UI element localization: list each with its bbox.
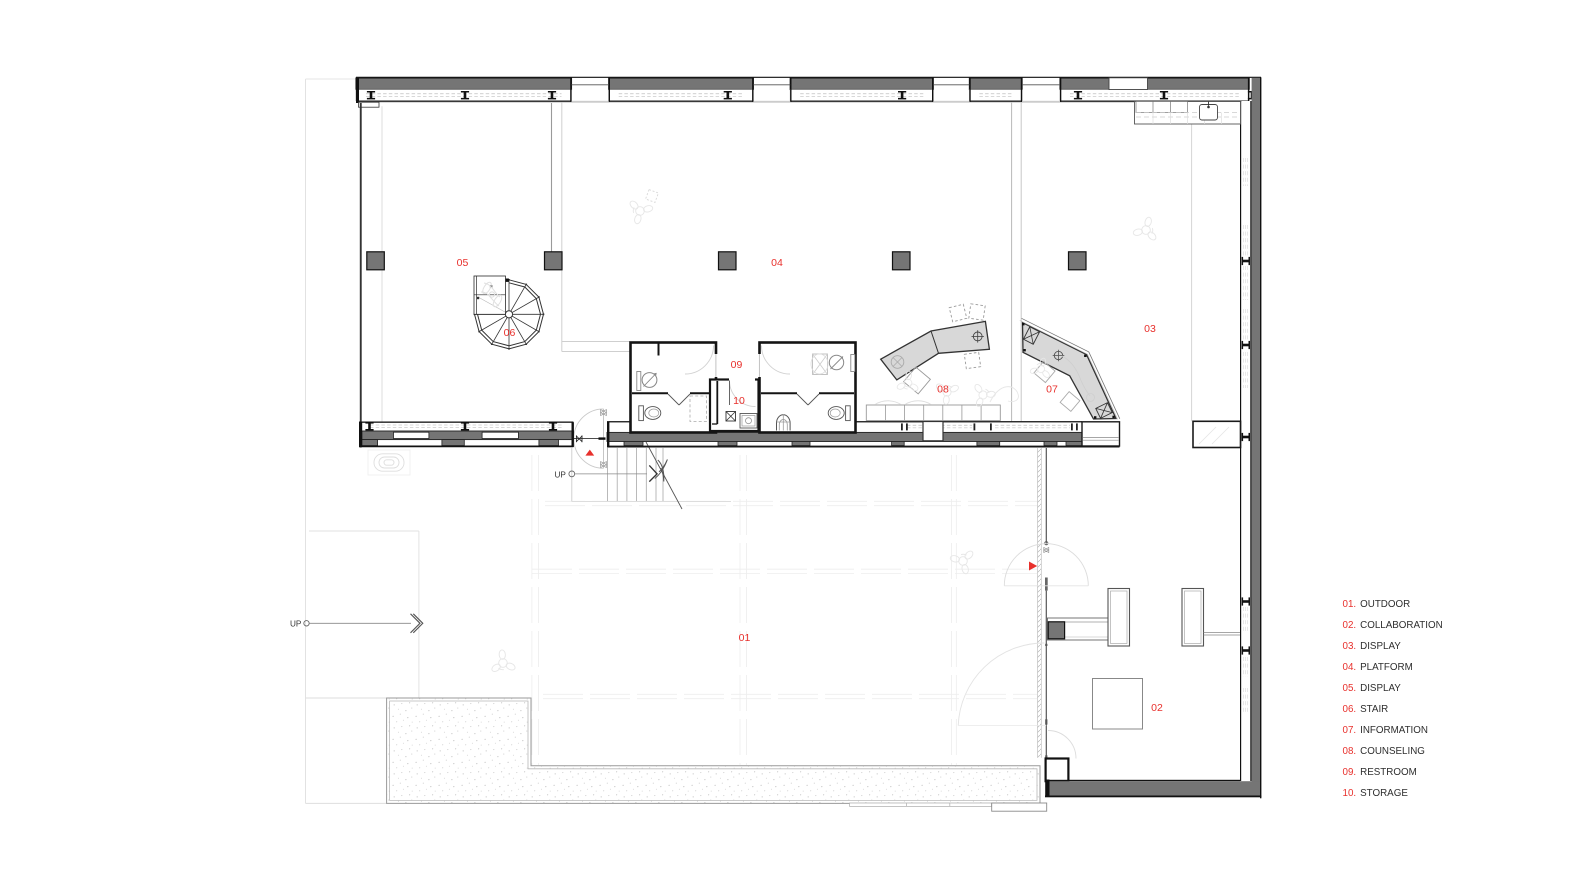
svg-text:01: 01 bbox=[739, 632, 751, 644]
svg-text:02: 02 bbox=[1151, 702, 1163, 714]
svg-text:08: 08 bbox=[937, 384, 949, 396]
svg-text:08.COUNSELING: 08.COUNSELING bbox=[1343, 746, 1425, 757]
svg-text:04.PLATFORM: 04.PLATFORM bbox=[1343, 662, 1413, 673]
svg-text:05: 05 bbox=[457, 257, 469, 269]
svg-text:06: 06 bbox=[504, 327, 516, 339]
svg-text:01.OUTDOOR: 01.OUTDOOR bbox=[1343, 599, 1411, 610]
svg-text:09.RESTROOM: 09.RESTROOM bbox=[1343, 767, 1417, 778]
svg-text:UP: UP bbox=[555, 470, 567, 479]
svg-text:05.DISPLAY: 05.DISPLAY bbox=[1343, 683, 1402, 694]
svg-text:03.DISPLAY: 03.DISPLAY bbox=[1343, 641, 1402, 652]
svg-text:10: 10 bbox=[733, 395, 745, 407]
svg-text:03: 03 bbox=[1144, 323, 1156, 335]
svg-text:09: 09 bbox=[731, 359, 743, 371]
svg-text:07.INFORMATION: 07.INFORMATION bbox=[1343, 725, 1428, 736]
svg-text:10.STORAGE: 10.STORAGE bbox=[1343, 788, 1409, 799]
svg-text:04: 04 bbox=[771, 257, 783, 269]
svg-text:07: 07 bbox=[1046, 384, 1058, 396]
svg-text:UP: UP bbox=[290, 620, 302, 629]
svg-text:06.STAIR: 06.STAIR bbox=[1343, 704, 1389, 715]
